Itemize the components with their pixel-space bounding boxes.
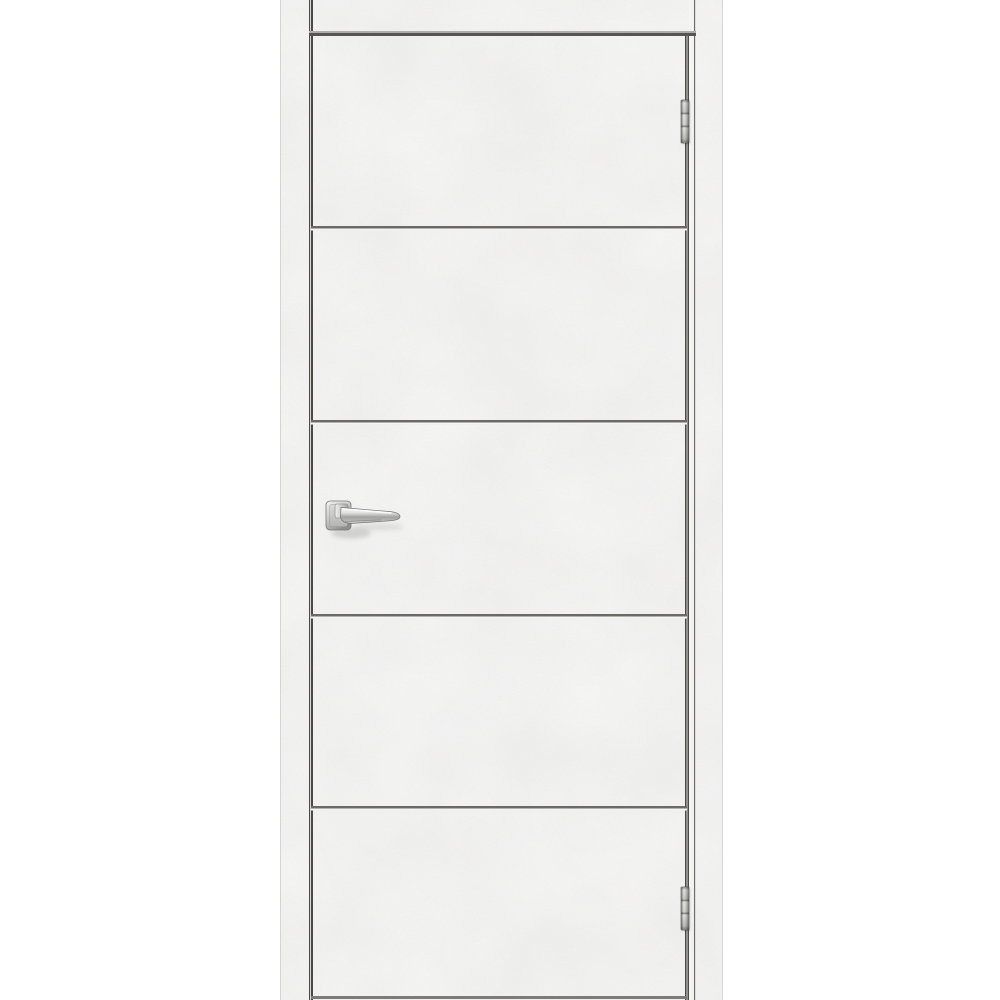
door-handle [321,492,411,544]
door-photo [280,0,723,1000]
door-hinge-top [681,100,689,143]
leaf-groove-2 [311,420,687,425]
leaf-groove-4 [311,806,687,811]
door-hinge-bottom [681,887,689,930]
leaf-groove-3 [311,614,687,619]
leaf-bottom-edge [311,996,687,999]
leaf-groove-1 [311,226,687,231]
frame-top-groove [309,31,696,36]
leaf-gap-right [685,31,689,1000]
casing-seam-right [694,0,696,1000]
casing-seam-left [309,0,313,1000]
product-photo-canvas [0,0,1000,1000]
lever-shadow [354,524,404,531]
